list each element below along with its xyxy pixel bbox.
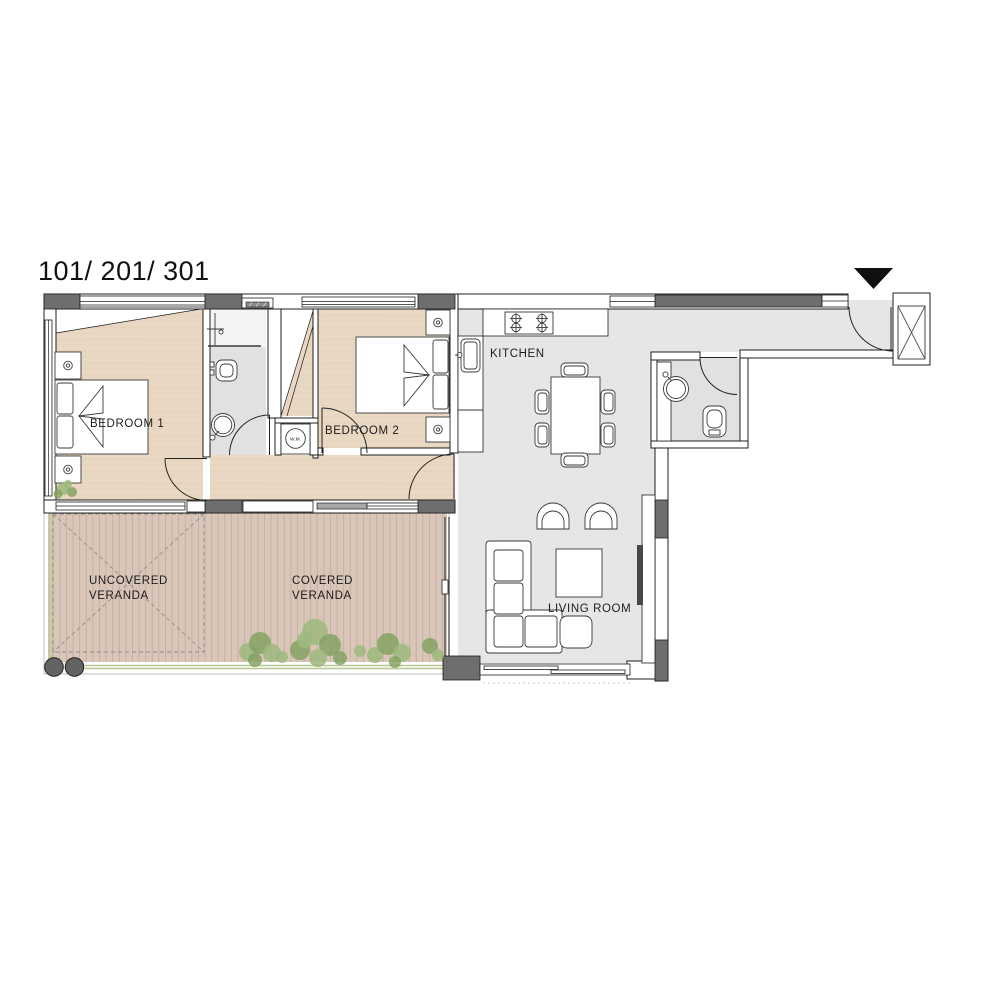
entrance-arrow-icon — [854, 268, 893, 289]
dining-table — [551, 377, 600, 454]
wm-closet-wall — [275, 418, 281, 455]
uncovered-veranda-label: UNCOVERED — [89, 575, 168, 587]
wc-south-wall — [651, 441, 748, 448]
shower-floor — [210, 309, 266, 347]
bed2 — [356, 337, 449, 413]
floor-plan-canvas: 101/ 201/ 301 — [0, 0, 1000, 1000]
kitchen-window — [610, 296, 655, 307]
ottoman — [560, 616, 592, 648]
tv — [637, 545, 643, 605]
hallway-south-wall — [740, 350, 895, 358]
bedroom1-window — [80, 296, 205, 307]
nightstand — [426, 310, 450, 335]
wc-toilet — [703, 406, 726, 437]
wm-closet-wall — [310, 418, 318, 455]
bedroom1-label: BEDROOM 1 — [90, 418, 164, 430]
living-room-label: LIVING ROOM — [548, 603, 631, 615]
page-title: 101/ 201/ 301 — [38, 256, 210, 286]
bedroom1-bathroom-wall — [203, 309, 210, 457]
wc-north-wall — [651, 352, 700, 360]
column — [45, 658, 64, 677]
bathroom-east-wall — [268, 309, 281, 418]
bedroom2-window — [302, 297, 415, 307]
uncovered-veranda-label2: VERANDA — [89, 590, 149, 602]
bedroom2-label: BEDROOM 2 — [325, 425, 399, 437]
nightstand — [55, 456, 81, 483]
west-window — [45, 320, 52, 496]
bedroom2-kitchen-wall — [450, 294, 458, 453]
bed1 — [55, 380, 148, 454]
corridor-floor — [210, 455, 455, 502]
shaft-hatch — [898, 306, 925, 359]
coffee-table — [556, 549, 602, 597]
hallway-floor — [655, 307, 893, 352]
floor-plan-drawing: 101/ 201/ 301 — [0, 0, 1000, 1000]
kitchen-label: KITCHEN — [490, 348, 545, 360]
washing-machine: W.M. — [281, 424, 310, 454]
wm-label: W.M. — [290, 437, 301, 443]
bedroom2-south-wall — [361, 448, 450, 455]
entrance-threshold — [848, 300, 893, 310]
bathroom-window — [242, 298, 273, 308]
stove — [505, 312, 553, 334]
covered-veranda-label: COVERED — [292, 575, 353, 587]
bedroom1-veranda-door — [56, 501, 205, 512]
wm-closet-wall — [275, 418, 318, 423]
nightstand — [426, 417, 450, 442]
hallway-window — [822, 295, 848, 307]
covered-veranda-label2: VERANDA — [292, 590, 352, 602]
wc-east-wall — [740, 352, 748, 448]
wc-west-wall — [651, 352, 657, 448]
living-sliding-door — [480, 664, 630, 675]
nightstand — [55, 352, 81, 379]
living-south-wall — [627, 661, 657, 679]
column — [65, 658, 84, 677]
